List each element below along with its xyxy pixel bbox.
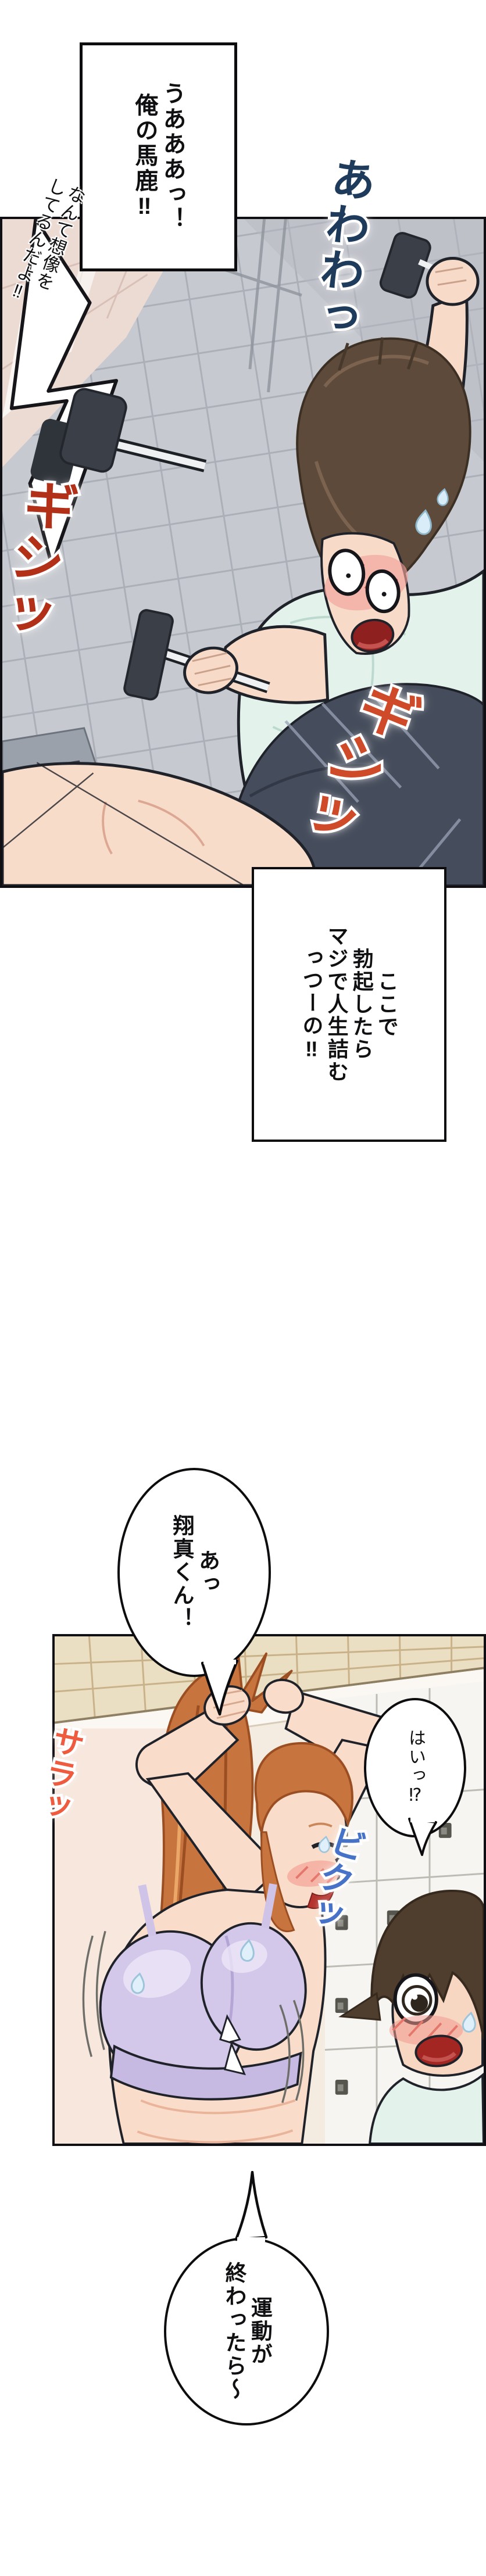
bubble-line: っつーの‼ (299, 925, 324, 1083)
speech-bubble-after-workout: 運動が 終わったら～ (164, 2237, 329, 2425)
speech-bubble-reply: はいっ⁉ (364, 1698, 466, 1837)
bubble-line: ここで (374, 925, 399, 1083)
speech-bubble-callout: あっ 翔真くん！ (117, 1468, 271, 1677)
speech-bubble-panic: ここで 勃起したら マジで人生詰む っつーの‼ (252, 867, 446, 1142)
bubble-line: 勃起したら (349, 925, 374, 1083)
bubble-line: 運動が (246, 2262, 272, 2401)
bubble-line: はいっ⁉ (405, 1729, 426, 1807)
bubble-line: マジで人生詰む (324, 925, 349, 1083)
manga-page: MAN (0, 0, 486, 2576)
bubble-line: 翔真くん！ (169, 1514, 194, 1631)
bubble-line: 終わったら～ (221, 2262, 246, 2401)
fist (427, 259, 478, 304)
bubble-tail (234, 2171, 269, 2242)
bubble-line: あっ (194, 1514, 220, 1631)
bubble-line: うあああっ！ (159, 81, 187, 232)
